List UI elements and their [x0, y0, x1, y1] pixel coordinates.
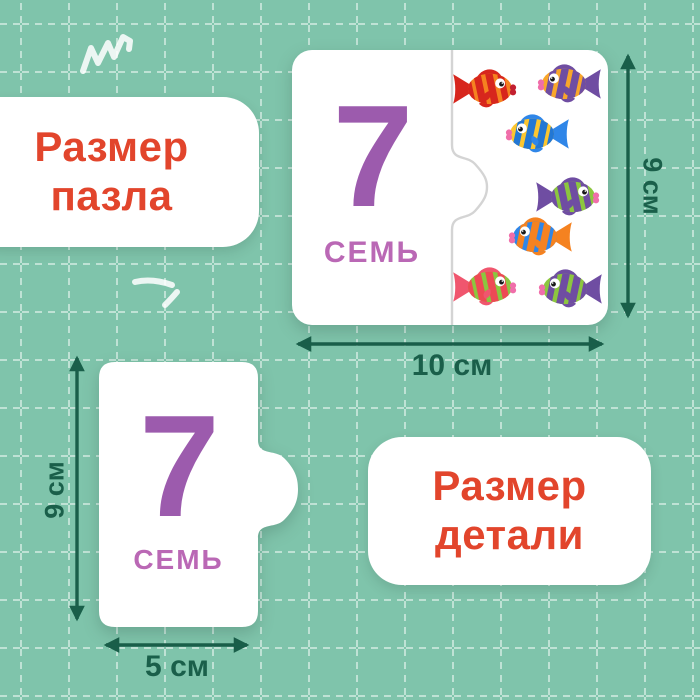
part-size-label: Размер детали [432, 462, 586, 559]
puzzle-card: 7 СЕМЬ [292, 50, 608, 325]
piece-number: 7 [99, 394, 258, 539]
chalk-doodle-dash [135, 281, 177, 305]
piece-card: 7 СЕМЬ [99, 362, 309, 627]
puzzle-width-label: 10 см [412, 349, 493, 383]
puzzle-height-label: 9 см [637, 157, 668, 215]
product-image: Размер пазла [0, 0, 700, 700]
piece-width-label: 5 см [145, 650, 209, 684]
puzzle-size-label: Размер пазла [34, 123, 188, 220]
puzzle-number: 7 [292, 84, 452, 229]
chalk-doodle-zigzag [83, 37, 130, 71]
part-size-label-card: Размер детали [368, 437, 651, 585]
puzzle-number-word: СЕМЬ [292, 236, 452, 270]
puzzle-size-label-card: Размер пазла [0, 97, 259, 247]
piece-height-label: 9 см [40, 461, 71, 519]
piece-number-word: СЕМЬ [99, 544, 258, 576]
